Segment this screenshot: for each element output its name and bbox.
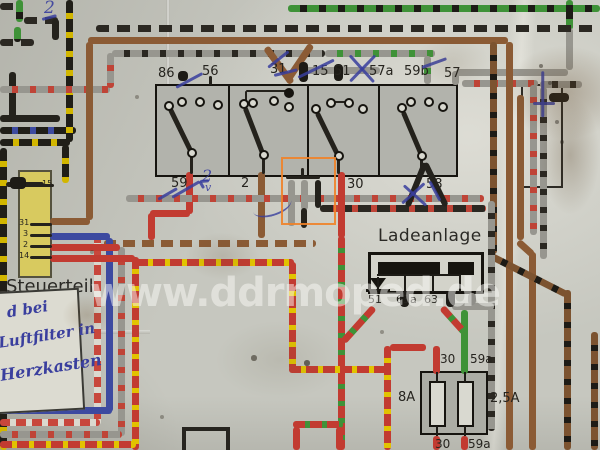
handwritten-note: d bei Luftfilter in Herzkasten bbox=[0, 288, 85, 415]
pen-stroke bbox=[274, 68, 298, 76]
pen-stroke bbox=[429, 181, 442, 202]
pen-stroke bbox=[175, 72, 203, 88]
paper-specks bbox=[0, 0, 2, 2]
pen-stroke bbox=[403, 184, 427, 206]
highlight-rectangle bbox=[281, 157, 336, 225]
handwriting-line: Luftfilter in bbox=[0, 319, 96, 352]
pen-stroke bbox=[267, 50, 289, 68]
pen-stroke bbox=[533, 102, 555, 105]
pen-stroke bbox=[297, 59, 334, 79]
pen-stroke bbox=[422, 57, 447, 68]
pen-stroke bbox=[542, 71, 545, 117]
pen-annotation-layer: 22v bbox=[0, 0, 600, 450]
wiring-diagram-photo: 865631155157a59b5759230585163a633059a8A2… bbox=[0, 0, 600, 450]
pen-note: v bbox=[205, 182, 211, 193]
pen-note: 2 bbox=[44, 0, 55, 17]
handwriting-line: d bei bbox=[5, 297, 49, 321]
